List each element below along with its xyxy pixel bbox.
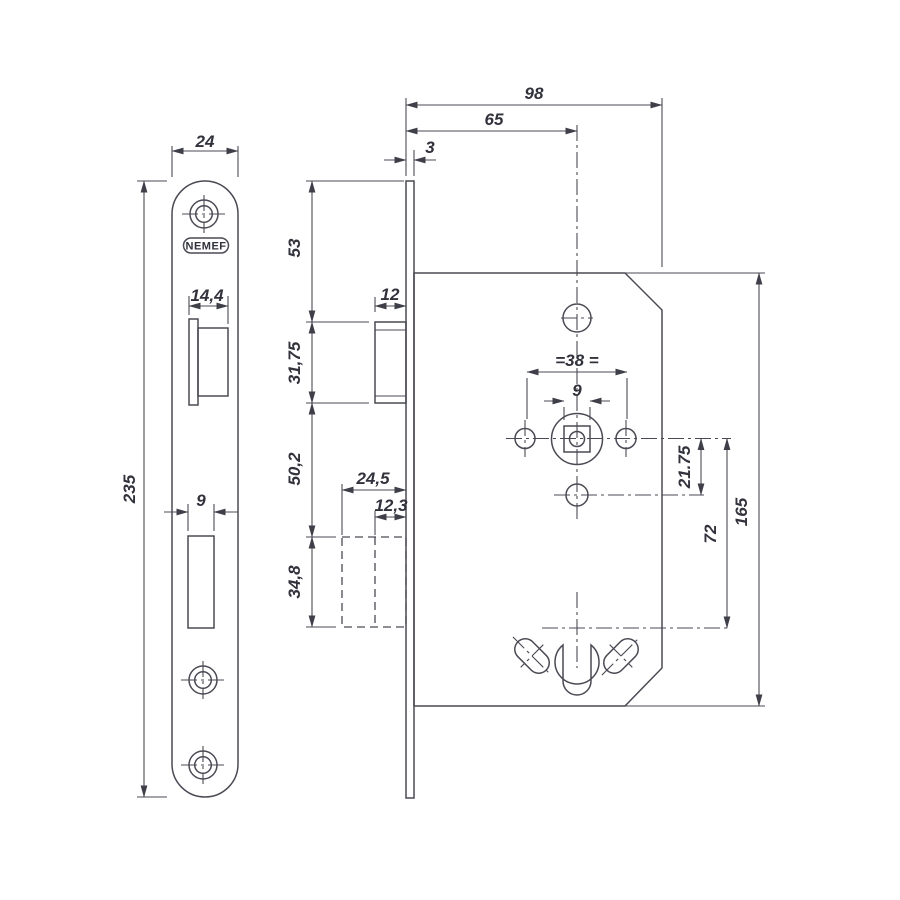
dim-latch-protrusion: 12 <box>375 285 406 312</box>
dim-bolt-throw: 12,3 <box>374 496 408 535</box>
dim-bolt-throw-label: 12,3 <box>374 496 408 515</box>
deadbolt-hidden-outline <box>342 537 406 627</box>
latch-bolt-side <box>375 322 406 403</box>
dim-faceplate-thickness-label: 3 <box>425 138 435 157</box>
brand-label: NEMEF <box>186 241 227 253</box>
oblong-hole-right-icon <box>591 626 652 687</box>
screw-hole-top-icon <box>182 195 227 233</box>
dim-spindle-to-lower-hole-label: 21.75 <box>675 445 694 489</box>
dim-bolt-cutout-width: 9 <box>164 491 238 531</box>
dim-case-height-label: 165 <box>732 497 751 526</box>
dim-plate-height: 235 <box>120 181 167 797</box>
dim-top-to-latch-label: 53 <box>285 238 304 257</box>
dim-latch-to-bolt-label: 50,2 <box>285 452 304 486</box>
dim-bolt-depth-label: 24,5 <box>355 469 390 488</box>
dim-spindle-holes-spacing-label: =38 = <box>555 351 599 370</box>
dim-spindle-to-cylinder: 72 <box>701 439 727 629</box>
dim-bolt-cutout-width-label: 9 <box>196 491 206 510</box>
dim-spindle-to-cylinder-label: 72 <box>701 524 720 543</box>
faceplate-side-outline <box>406 181 414 798</box>
dim-latch-height: 31,75 <box>285 322 312 403</box>
screw-hole-bottom-icon <box>181 746 225 784</box>
latch-bolt-front <box>189 319 228 405</box>
dim-plate-height-label: 235 <box>120 474 139 504</box>
dim-plate-width: 24 <box>172 132 238 177</box>
deadbolt-cutout <box>188 536 214 628</box>
dim-latch-protrusion-label: 12 <box>381 285 400 304</box>
dim-case-depth-label: 98 <box>525 84 544 103</box>
lock-case-side-view: 98 65 3 53 12 31,75 <box>285 84 765 798</box>
brand-badge: NEMEF <box>184 238 229 253</box>
case-edge-extension-lines <box>625 273 765 706</box>
dim-case-depth: 98 <box>406 84 662 267</box>
dim-backset: 65 <box>406 110 577 131</box>
dim-plate-width-label: 24 <box>195 132 215 151</box>
dim-case-height: 165 <box>732 273 759 706</box>
oblong-hole-left-icon <box>502 626 563 687</box>
dim-bolt-height-label: 34,8 <box>285 565 304 599</box>
lock-case-outline <box>414 273 662 706</box>
dim-spindle-square-label: 9 <box>572 381 582 400</box>
dim-latch-height-label: 31,75 <box>285 341 304 384</box>
dim-backset-label: 65 <box>485 110 504 129</box>
dim-bolt-height: 34,8 <box>285 537 336 627</box>
lock-technical-drawing: NEMEF 24 14,4 <box>0 0 900 900</box>
dim-latch-width-label: 14,4 <box>190 286 224 305</box>
dim-faceplate-thickness: 3 <box>384 138 436 176</box>
faceplate-front-view: NEMEF 24 14,4 <box>120 132 238 797</box>
faceplate-outline <box>172 181 238 797</box>
screw-hole-middle-icon <box>181 661 225 699</box>
dim-spindle-to-lower-hole: 21.75 <box>675 439 701 496</box>
